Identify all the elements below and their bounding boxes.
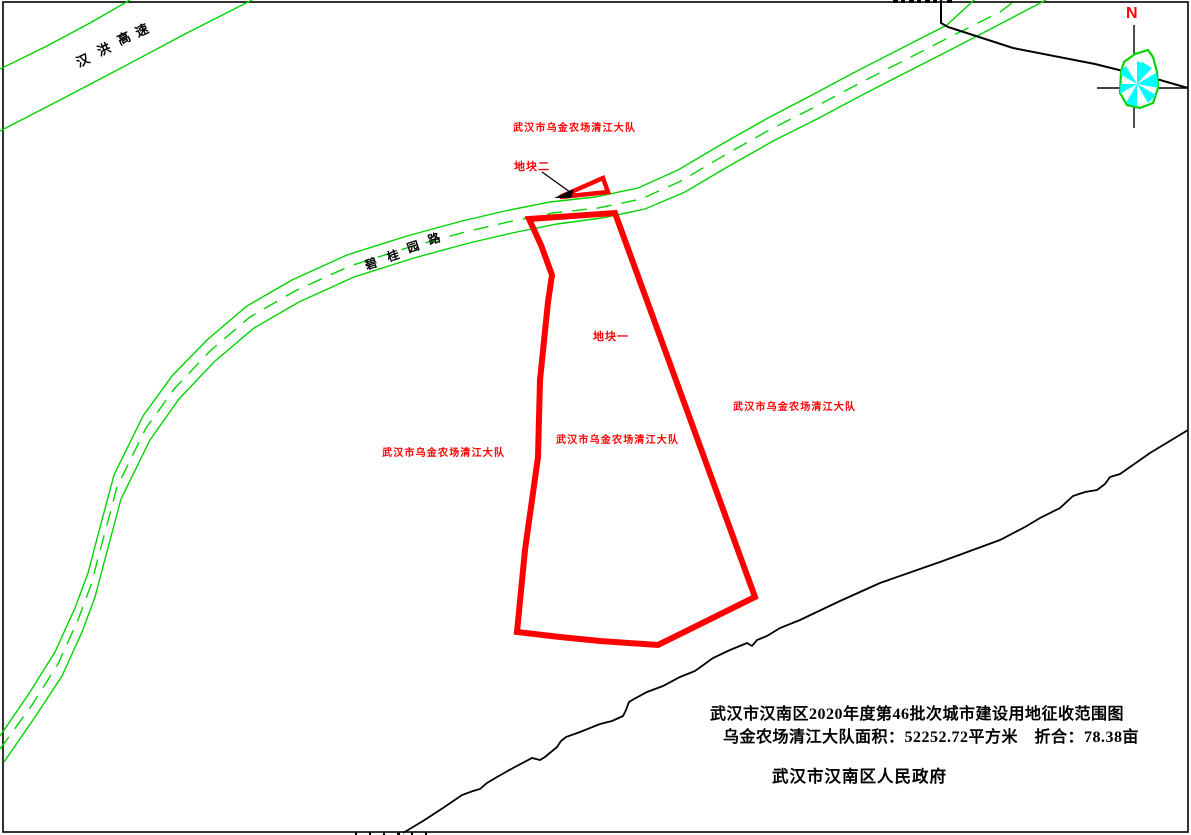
parcel1-label: 地块一 [593, 332, 629, 343]
area-owner-label: 武汉市乌金农场清江大队 [513, 124, 636, 134]
map-title: 武汉市汉南区2020年度第46批次城市建设用地征收范围图 [710, 707, 1124, 723]
area-statistics: 乌金农场清江大队面积：52252.72平方米 折合：78.38亩 [723, 730, 1139, 746]
parcel2-label: 地块二 [514, 162, 550, 173]
area-owner-label: 武汉市乌金农场清江大队 [556, 436, 679, 446]
parcel1-outline [517, 213, 755, 645]
compass [1097, 25, 1188, 128]
government-signature: 武汉市汉南区人民政府 [772, 769, 947, 786]
area-owner-label: 武汉市乌金农场清江大队 [382, 449, 505, 459]
north-label: N [1126, 6, 1138, 22]
hanhong-expressway-lines [0, 0, 252, 131]
biguiyuan-road-lines [0, 0, 1046, 762]
land-acquisition-map: 汉 洪 高 速 碧 桂 园 路 武汉市乌金农场清江大队 武汉市乌金农场清江大队 … [0, 0, 1191, 835]
parcel2-leader-arrow [542, 172, 574, 198]
area-owner-label: 武汉市乌金农场清江大队 [733, 403, 856, 413]
